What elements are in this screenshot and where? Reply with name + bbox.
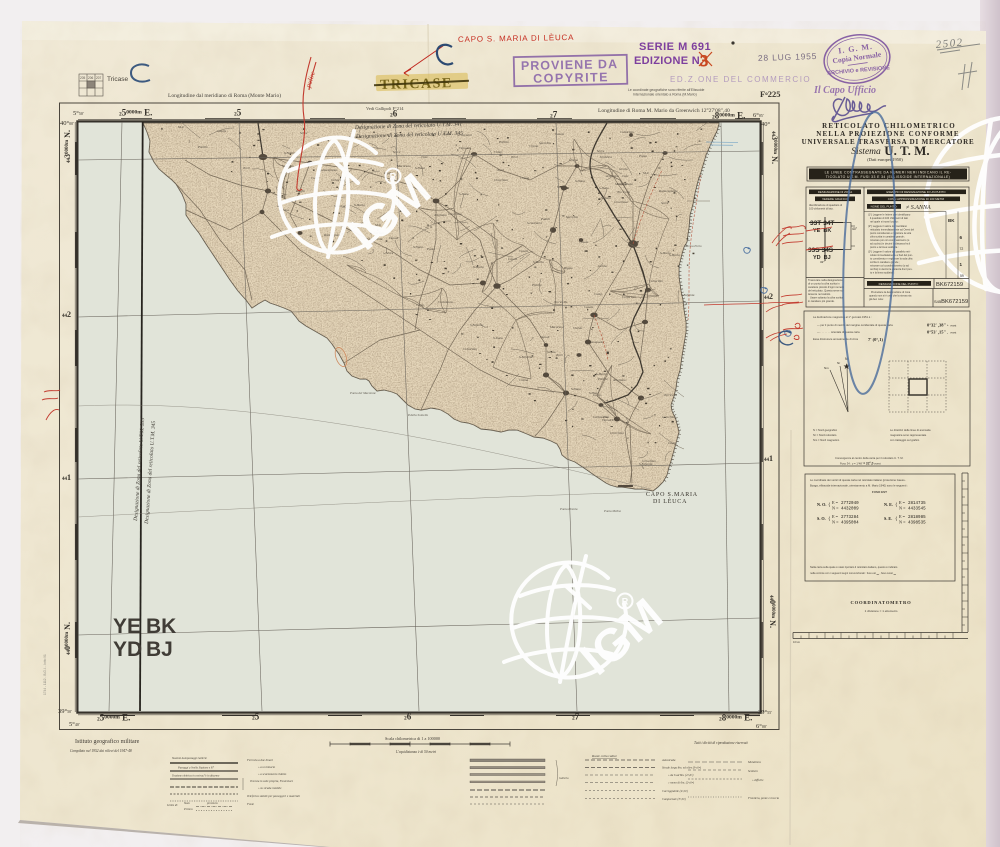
svg-text:Crocefisso: Crocefisso <box>494 178 508 182</box>
svg-text:già ben nota :: già ben nota : <box>869 298 884 301</box>
svg-text:in carattere più grande.: in carattere più grande. <box>808 299 835 303</box>
svg-text:S.Maria: S.Maria <box>533 260 544 264</box>
svg-text:Fo225: Fo225 <box>760 89 780 99</box>
svg-text:6°05': 6°05' <box>753 112 764 119</box>
svg-text:Casale: Casale <box>508 257 518 261</box>
svg-text:M.te: M.te <box>642 171 649 175</box>
svg-text:10 km: 10 km <box>793 640 800 644</box>
svg-text:1744 - 1112 - B.G.I. - lotto 9: 1744 - 1112 - B.G.I. - lotto 91 <box>43 654 47 695</box>
svg-text:Camp.: Camp. <box>594 292 603 296</box>
svg-text:lamente nel calcolo.: lamente nel calcolo. <box>808 292 831 296</box>
svg-text:S.Dana: S.Dana <box>493 336 503 340</box>
svg-text:39°50': 39°50' <box>58 708 72 715</box>
svg-text:ovest: ovest <box>950 324 956 328</box>
svg-text:Convergenza al centro della: Convergenza al centro della carta per il… <box>835 456 904 460</box>
svg-text:Torre: Torre <box>556 353 564 357</box>
svg-text:Celsorizzo: Celsorizzo <box>620 130 634 134</box>
svg-text:Serra: Serra <box>661 201 669 205</box>
svg-text:Fonte: Fonte <box>246 802 255 806</box>
svg-text:NOME DEL PUNTO:: NOME DEL PUNTO: <box>871 205 898 209</box>
svg-text:Casale: Casale <box>519 249 529 253</box>
svg-text:206: 206 <box>88 76 94 80</box>
svg-text:Torricella: Torricella <box>554 300 567 304</box>
svg-text:» difficile: » difficile <box>752 778 764 782</box>
svg-text:2773284: 2773284 <box>841 516 859 520</box>
svg-text:4433545: 4433545 <box>908 508 926 512</box>
svg-text:DI LÈUCA: DI LÈUCA <box>653 497 687 505</box>
svg-text:3: 3 <box>700 53 708 70</box>
svg-text:{: { <box>828 517 830 522</box>
svg-text:Usare soltanto la cifra sc: Usare soltanto la cifra scritta <box>810 296 843 300</box>
svg-text:Mulattiera: Mulattiera <box>747 760 761 764</box>
svg-text:40°: 40° <box>852 227 858 231</box>
svg-text:Crocefisso: Crocefisso <box>642 459 656 463</box>
svg-text:Case: Case <box>622 174 629 178</box>
svg-text:ovest: ovest <box>950 331 956 335</box>
svg-text:Riggio: Riggio <box>563 266 573 270</box>
svg-text:Serra: Serra <box>597 149 605 153</box>
svg-text:Crocefisso: Crocefisso <box>662 415 676 419</box>
svg-text:EDIZIONE N.: EDIZIONE N. <box>634 55 703 67</box>
svg-text:CON L'APPROSSIMAZIONE DI 100 M: CON L'APPROSSIMAZIONE DI 100 METRI <box>888 197 945 201</box>
svg-text:N =: N = <box>899 506 906 511</box>
svg-text:Celsorizzo: Celsorizzo <box>649 279 663 283</box>
svg-text:S.Dana: S.Dana <box>415 166 425 170</box>
svg-text:TICOLATO U.T.M. FUSI 33 E 34: TICOLATO U.T.M. FUSI 33 E 34 (ELLISSOIDE… <box>826 175 950 179</box>
svg-text:FUSO EST: FUSO EST <box>872 490 887 494</box>
svg-text:Casale: Casale <box>584 305 594 309</box>
svg-text:1 divisione = 1 ettometr: 1 divisione = 1 ettometro <box>865 609 898 613</box>
svg-text:Compilato nel 1952 dai rilievi: Compilato nel 1952 dai rilievi del 1947-… <box>70 749 132 753</box>
svg-text:Identificazione di quadrato: Identificazione di quadrato di <box>809 203 842 207</box>
svg-text:S.Maria: S.Maria <box>473 265 484 269</box>
svg-text:5°40': 5°40' <box>69 721 80 728</box>
svg-text:Arigliano: Arigliano <box>612 378 626 382</box>
svg-text:S.Eufemia: S.Eufemia <box>681 293 695 297</box>
svg-text:32°: 32° <box>820 260 825 264</box>
svg-text:Torricella: Torricella <box>664 393 677 397</box>
svg-text:Casale: Casale <box>579 240 589 244</box>
svg-text:RETICOLATO CHILOMETRICO: RETICOLATO CHILOMETRICO <box>822 122 956 130</box>
svg-text:Sentiero: Sentiero <box>748 769 758 773</box>
svg-text:Ferrovia a due binari: Ferrovia a due binari <box>246 758 273 762</box>
svg-text:Vignali: Vignali <box>459 146 469 150</box>
svg-text:M.te: M.te <box>177 125 184 129</box>
svg-text:Autostrada: Autostrada <box>661 758 676 762</box>
svg-text:Arigliano: Arigliano <box>433 213 447 217</box>
svg-text:40°00': 40°00' <box>60 120 74 127</box>
svg-text:N. E.: N. E. <box>884 502 893 507</box>
svg-text:Pozzo: Pozzo <box>426 247 435 251</box>
svg-text:E =: E = <box>899 514 906 519</box>
svg-text:7' (0°,1): 7' (0°,1) <box>868 337 884 342</box>
svg-text:Vignali: Vignali <box>540 335 550 339</box>
svg-text:P.della Suinella: P.della Suinella <box>407 413 428 417</box>
svg-text:Cosma: Cosma <box>569 158 579 162</box>
svg-text:4398535: 4398535 <box>908 522 926 526</box>
svg-text:Pistillo: Pistillo <box>597 377 608 381</box>
svg-text:Trazione elettrica in costr: Trazione elettrica in costruz.°e in disa… <box>172 775 220 778</box>
svg-text:Crocefisso: Crocefisso <box>614 200 628 204</box>
svg-text:72: 72 <box>960 247 964 251</box>
svg-text:Scala chilometrica di 1 a 1000: Scala chilometrica di 1 a 100000 <box>385 736 440 741</box>
svg-text:Le direttrici delle linee: Le direttrici delle linee di anomalia <box>890 428 931 432</box>
svg-text:N = Nord geografico: N = Nord geografico <box>813 428 838 432</box>
svg-text:BJ: BJ <box>146 638 173 661</box>
svg-text:COORDINATOMETRO: COORDINATOMETRO <box>850 600 911 605</box>
svg-text:Nr: Nr <box>837 361 840 365</box>
svg-text:E =: E = <box>899 500 906 505</box>
svg-text:Macurano: Macurano <box>549 325 564 329</box>
svg-text:CAPO S.MARIA: CAPO S.MARIA <box>646 492 698 498</box>
svg-text:Marina Porto: Marina Porto <box>683 244 702 248</box>
svg-text:Specchia: Specchia <box>539 141 551 145</box>
svg-text:Riggio: Riggio <box>295 189 305 193</box>
svg-text:Pistillo: Pistillo <box>197 145 208 149</box>
svg-text:Internazionale orientato a Rom: Internazionale orientato a Roma (M.Mario… <box>633 93 697 97</box>
svg-text:0°53' ,15" ,: 0°53' ,15" , <box>927 330 948 335</box>
svg-text:Vignali: Vignali <box>602 418 612 422</box>
svg-text:ED.Z.ONE DEL COMMERCIO: ED.Z.ONE DEL COMMERCIO <box>670 75 811 84</box>
svg-text:{: { <box>828 503 830 508</box>
svg-text:59: 59 <box>960 274 964 278</box>
svg-text:S.Dana: S.Dana <box>599 186 609 190</box>
svg-text:2818985: 2818985 <box>908 516 926 520</box>
svg-text:del reticolato. Questa serve: del reticolato. Questa serve so- <box>808 289 844 293</box>
svg-text:Essa diminuisce annualmente: Essa diminuisce annualmente di circa <box>813 337 858 341</box>
svg-text:provincia: provincia <box>206 802 218 805</box>
svg-text:con tratteggio sul grafico: con tratteggio sul grafico <box>890 438 920 442</box>
svg-text:4395004: 4395004 <box>841 522 859 526</box>
svg-text:40°: 40° <box>761 121 771 128</box>
svg-text:Nr = Nord reticolato: Nr = Nord reticolato <box>813 433 837 437</box>
svg-text:Stazioni Autopassaggi: Stazioni Autopassaggi Gallerie <box>172 757 208 760</box>
svg-text:to e la linea suddetta :: to e la linea suddetta : <box>870 272 895 275</box>
svg-text:Longitudine dal meridiano di R: Longitudine dal meridiano di Roma (Monte… <box>168 92 281 99</box>
svg-text:205: 205 <box>80 76 86 80</box>
svg-text:Longitudine di Roma M. Mario d: Longitudine di Roma M. Mario da Greenwic… <box>598 107 730 114</box>
svg-text:6°00': 6°00' <box>756 723 767 730</box>
svg-text:100 chilometri di lato.: 100 chilometri di lato. <box>809 207 834 211</box>
svg-text:4432009: 4432009 <box>841 508 859 512</box>
svg-text:Le coordinate geografiche sono: Le coordinate geografiche sono riferite … <box>628 88 705 92</box>
svg-text:207: 207 <box>96 76 102 80</box>
svg-text:Torre: Torre <box>243 166 251 170</box>
svg-text:S.Eufemia: S.Eufemia <box>519 355 533 359</box>
svg-text:M.te: M.te <box>556 185 563 189</box>
svg-text:S.Dana: S.Dana <box>413 245 423 249</box>
svg-text:Ciardo: Ciardo <box>573 326 583 330</box>
svg-text:0°32' ,38" +: 0°32' ,38" + <box>927 323 949 328</box>
svg-text:N =: N = <box>832 520 839 525</box>
svg-text:≠ S.ANNA: ≠ S.ANNA <box>906 205 931 211</box>
svg-text:S.Giovanni: S.Giovanni <box>527 221 542 225</box>
svg-text:2502: 2502 <box>935 37 964 51</box>
svg-text:Punta del Macolone: Punta del Macolone <box>349 391 376 395</box>
svg-text:S.Dana: S.Dana <box>571 387 581 391</box>
svg-text:Pretura: Pretura <box>183 808 193 811</box>
svg-text:DESIGNAZIONE DEL PUNTO :: DESIGNAZIONE DEL PUNTO : <box>879 282 920 286</box>
svg-text:S.Dana: S.Dana <box>575 179 585 183</box>
svg-text:E =: E = <box>832 500 839 505</box>
svg-text:» su strada rotabile: » su strada rotabile <box>258 786 282 790</box>
svg-text:{: { <box>895 517 897 522</box>
svg-text:Torre: Torre <box>497 168 505 172</box>
svg-text:BK: BK <box>948 218 955 223</box>
svg-text:S.Dana: S.Dana <box>459 192 469 196</box>
svg-text:Serra: Serra <box>386 251 394 255</box>
svg-text:S. E.: S. E. <box>884 516 892 521</box>
svg-text:ESEMPIO DI DESIGNAZIONE DI UN: ESEMPIO DI DESIGNAZIONE DI UN PUNTO <box>886 190 946 194</box>
svg-text:Limite di:: Limite di: <box>166 804 178 807</box>
svg-text:DESIGNAZIONE DI ZONA: DESIGNAZIONE DI ZONA <box>818 190 852 194</box>
svg-text:E =: E = <box>832 514 839 519</box>
svg-text:Vedi Gallipoli F°214: Vedi Gallipoli F°214 <box>366 106 404 111</box>
svg-text:carattere piccolo d'ogni numer: carattere piccolo d'ogni numero <box>808 285 845 289</box>
svg-text:Stato: Stato <box>184 802 190 805</box>
svg-text:Verdesca: Verdesca <box>600 155 612 159</box>
svg-text:Passaggi a livello Stazione: Passaggi a livello Stazione e P.° <box>177 767 215 770</box>
svg-text:S.Maria: S.Maria <box>660 251 671 255</box>
svg-text:— per il punto di mezzo: — per il punto di mezzo del margine occi… <box>817 323 893 327</box>
svg-text:Nm = Nord magnetico: Nm = Nord magnetico <box>813 438 840 442</box>
svg-text:(Dati europei 1950): (Dati europei 1950) <box>867 157 903 162</box>
svg-text:L'equidistanza è di 50 metri: L'equidistanza è di 50 metri <box>395 750 436 754</box>
svg-text:Specchia: Specchia <box>566 215 578 219</box>
svg-text:Camp.: Camp. <box>494 150 503 154</box>
svg-text:N =: N = <box>832 506 839 511</box>
svg-text:Istituto geografico militare: Istituto geografico militare <box>75 738 140 745</box>
svg-text:{: { <box>895 503 897 508</box>
svg-text:Pozzo: Pozzo <box>638 154 647 158</box>
svg-text:Carbonara: Carbonara <box>438 300 453 304</box>
svg-text:Pistillo: Pistillo <box>531 283 542 287</box>
svg-text:La declinazione magnetica a: La declinazione magnetica al 1° gennaio … <box>813 315 872 319</box>
svg-text:YD: YD <box>113 638 142 661</box>
svg-text:Teleferica stabile per passegg: Teleferica stabile per passeggeri e mate… <box>247 794 300 798</box>
svg-text:COPYRITE: COPYRITE <box>533 70 609 86</box>
svg-text:SERIE M 691: SERIE M 691 <box>639 41 711 53</box>
svg-text:BK672159: BK672159 <box>936 282 963 288</box>
svg-text:Rottacapozza: Rottacapozza <box>585 340 604 344</box>
svg-text:Crocefisso: Crocefisso <box>610 431 624 435</box>
svg-text:Trascurare nella designazion: Trascurare nella designazione <box>808 278 843 282</box>
svg-text:Torre: Torre <box>511 155 519 159</box>
svg-text:VEDERE GRAFICO: VEDERE GRAFICO <box>822 197 849 201</box>
svg-text:LE LINEE CONTRASSEGNATE DA NUM: LE LINEE CONTRASSEGNATE DA NUMERI NERI I… <box>825 171 952 175</box>
svg-text:N. O.: N. O. <box>817 502 826 507</box>
svg-text:di un punto la cifra scri: di un punto la cifra scritta in <box>808 282 840 286</box>
svg-text:39°55': 39°55' <box>758 709 772 716</box>
svg-text:5°50': 5°50' <box>73 110 84 117</box>
svg-text:BK: BK <box>146 615 176 638</box>
svg-text:N =: N = <box>899 520 906 525</box>
svg-text:28 LUG 1955: 28 LUG 1955 <box>758 51 818 63</box>
svg-text:S. O.: S. O. <box>817 516 826 521</box>
svg-text:Tutti i diritti di riproduzion: Tutti i diritti di riproduzione riservat… <box>694 741 748 745</box>
svg-text:Ruote colla radice: Ruote colla radice <box>591 754 618 758</box>
svg-text:Punta Mèliso: Punta Mèliso <box>603 509 621 513</box>
svg-text:» a scartamento ridotto: » a scartamento ridotto <box>258 772 287 776</box>
svg-text:Il Capo Ufficio: Il Capo Ufficio <box>813 85 876 96</box>
svg-text:Cosma: Cosma <box>529 144 539 148</box>
svg-text:Fuso 34 : γ = 1°48' = 32°,0: Fuso 34 : γ = 1°48' = 32°,0 ovest <box>840 462 881 466</box>
svg-text:Galleria: Galleria <box>559 777 569 780</box>
svg-text:YE: YE <box>113 615 141 638</box>
svg-text:Tricase: Tricase <box>107 76 128 83</box>
svg-text:» a un binario: » a un binario <box>258 765 276 769</box>
svg-text:Cosma: Cosma <box>520 176 530 180</box>
svg-text:Nm: Nm <box>824 366 829 370</box>
svg-text:2814735: 2814735 <box>908 502 926 506</box>
svg-text:Celsorizzo: Celsorizzo <box>463 347 477 351</box>
svg-text:Punta Ristola: Punta Ristola <box>559 507 578 511</box>
svg-text:magnetica sono rappresenta: magnetica sono rappresentate <box>890 433 927 437</box>
svg-text:Cosma: Cosma <box>519 378 529 382</box>
svg-text:— . . . . .: — . . . . . . . orientale di questa cart… <box>817 330 860 334</box>
svg-text:Boaga, ellissoide internazio: Boaga, ellissoide internazionale, orient… <box>810 484 908 488</box>
svg-text:2772040: 2772040 <box>841 502 859 506</box>
svg-text:Le coordinate dei vertici: Le coordinate dei vertici di questa cart… <box>810 478 906 482</box>
svg-text:Pistillo: Pistillo <box>498 140 509 144</box>
svg-text:Nella carta sulla quale è: Nella carta sulla quale è stato riportat… <box>810 565 898 569</box>
svg-text:S.Eufemia: S.Eufemia <box>470 323 484 327</box>
svg-text:Grotta: Grotta <box>619 167 628 171</box>
